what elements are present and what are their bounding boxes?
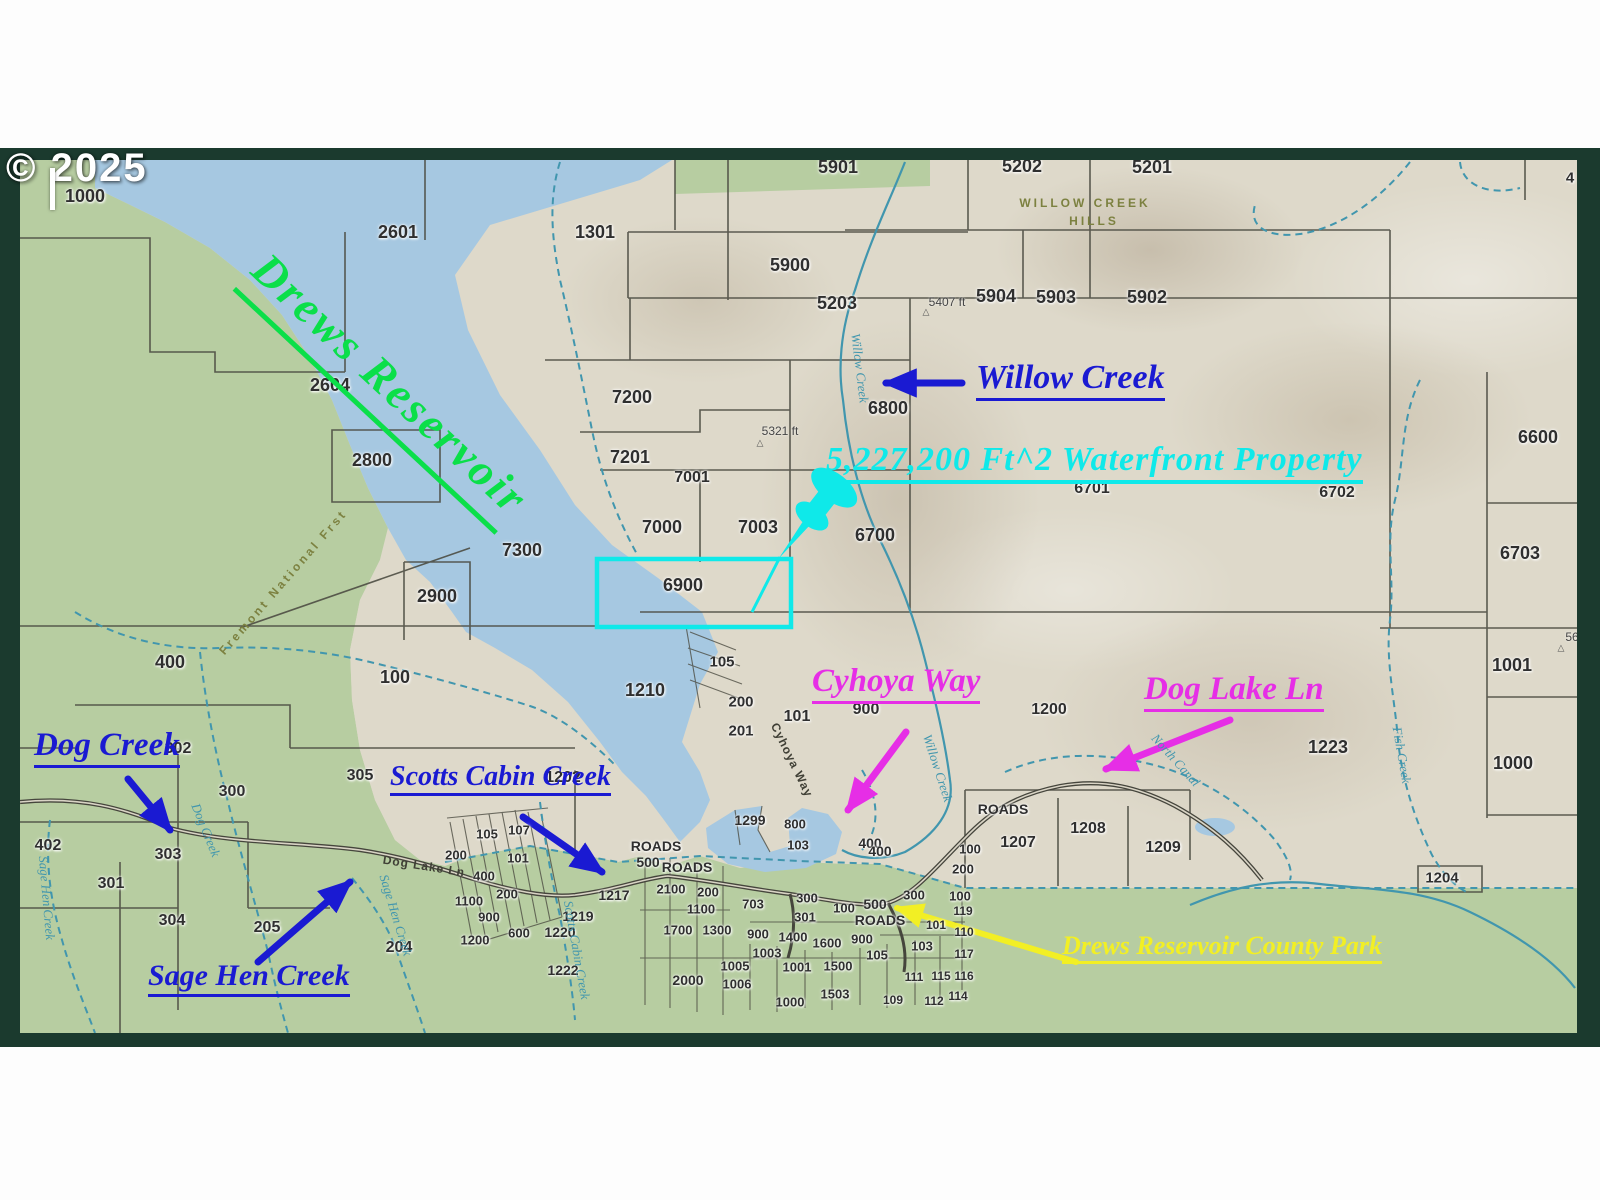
parcel-label: 1301 (575, 223, 615, 241)
county-park-callout: Drews Reservoir County Park (1062, 932, 1382, 964)
parcel-label: 5903 (1036, 288, 1076, 306)
parcel-label: 4 (1566, 171, 1574, 186)
parcel-label: 304 (159, 913, 186, 929)
parcel-label: 1001 (783, 961, 812, 974)
watermark: © 2025 (6, 146, 148, 191)
parcel-label: 1207 (1000, 835, 1036, 851)
parcel-label: 900 (747, 928, 769, 941)
parcel-label: 800 (784, 818, 806, 831)
creek-willow-solid (841, 162, 1575, 988)
parcel-label: 200 (728, 695, 753, 710)
parcel-label: ROADS (855, 913, 906, 927)
parcel-label: 101 (784, 709, 811, 725)
parcel-label: ROADS (631, 839, 682, 853)
parcel-label: 1100 (455, 895, 483, 908)
parcel-label: 5202 (1002, 160, 1042, 175)
parcel-label: 400 (868, 844, 891, 858)
parcel-label: 7201 (610, 448, 650, 466)
parcel-label: 1204 (1425, 871, 1458, 886)
parcel-label: 300 (796, 892, 818, 905)
parcel-label: 7003 (738, 518, 778, 536)
parcel-label: 107 (508, 824, 530, 837)
parcel-label: 6703 (1500, 544, 1540, 562)
elevation-triangle-icon: △ (923, 308, 930, 317)
parcel-label: 1200 (1031, 702, 1067, 718)
elevation-label: 56 (1565, 631, 1577, 643)
parcel-label: 5203 (817, 294, 857, 312)
parcel-label: 7300 (502, 541, 542, 559)
parcel-label: 6900 (663, 576, 703, 594)
parcel-label: 112 (924, 995, 943, 1007)
sage-hen-creek-callout: Sage Hen Creek (148, 960, 350, 997)
place-label: WILLOW CREEK (1019, 197, 1150, 209)
parcel-label: 2100 (657, 883, 686, 896)
parcel-label: 301 (794, 911, 816, 924)
scotts-cabin-creek-callout: Scotts Cabin Creek (390, 762, 611, 796)
parcel-label: 1300 (703, 924, 732, 937)
willow-creek-callout: Willow Creek (976, 360, 1165, 401)
parcel-label: 200 (445, 849, 467, 862)
parcel-label: 5902 (1127, 288, 1167, 306)
parcel-label: 1700 (664, 924, 693, 937)
elevation-label: 5407 ft (929, 296, 966, 308)
parcel-label: 6700 (855, 526, 895, 544)
cyhoya-way-callout: Cyhoya Way (812, 664, 980, 704)
parcel-label: 7000 (642, 518, 682, 536)
parcel-label: 5904 (976, 287, 1016, 305)
parcel-label: 1200 (461, 934, 490, 947)
parcel-label: 105 (866, 949, 888, 962)
parcel-label: 115 (931, 970, 950, 982)
parcel-label: 5901 (818, 160, 858, 176)
parcel-label: 1000 (776, 996, 805, 1009)
parcel-label: 100 (833, 902, 855, 915)
water-reservoir-bay (706, 806, 842, 872)
waterfront-property-label: 5,227,200 Ft^2 Waterfront Property (826, 442, 1363, 484)
parcel-label: 2900 (417, 587, 457, 605)
parcel-label: 600 (508, 927, 530, 940)
parcel-label: 6702 (1319, 485, 1355, 501)
parcel-label: 105 (476, 828, 498, 841)
parcel-label: 100 (949, 890, 971, 903)
parcel-label: 1600 (813, 937, 842, 950)
cyhoya-way-arrow (848, 732, 906, 810)
parcel-label: 303 (155, 847, 182, 863)
parcel-label: ROADS (978, 802, 1029, 816)
parcel-label: 300 (903, 889, 925, 902)
parcel-label: 114 (948, 990, 967, 1002)
parcel-label: 703 (742, 898, 764, 911)
map-frame: 1000260113015901520252014590052035904590… (0, 148, 1600, 1047)
parcel-label: 119 (953, 905, 972, 917)
parcel-label: 200 (496, 888, 518, 901)
parcel-label: 1217 (598, 888, 629, 902)
parcel-label: 900 (478, 911, 500, 924)
parcel-label: 1223 (1308, 738, 1348, 756)
parcel-label: 1299 (734, 813, 765, 827)
parcel-label: 400 (473, 870, 495, 883)
parcel-label: 5201 (1132, 160, 1172, 176)
parcel-label: 5900 (770, 256, 810, 274)
parcel-label: 1006 (723, 978, 752, 991)
listing-map-page: 1000260113015901520252014590052035904590… (0, 0, 1600, 1200)
elevation-label: 5321 ft (762, 425, 799, 437)
parcel-label: 205 (254, 920, 281, 936)
parcel-label: 500 (636, 855, 659, 869)
parcel-label: 111 (905, 971, 924, 983)
land-forest-top-strip (675, 160, 930, 194)
parcel-label: 200 (952, 863, 974, 876)
parcel-label: 117 (954, 948, 973, 960)
parcel-label: 305 (347, 768, 374, 784)
parcel-label: 300 (219, 784, 246, 800)
parcel-label: 1208 (1070, 821, 1106, 837)
parcel-label: 6600 (1518, 428, 1558, 446)
parcel-label: 101 (926, 919, 946, 931)
parcel-label: 1210 (625, 681, 665, 699)
parcel-label: 7200 (612, 388, 652, 406)
parcel-label: 1003 (753, 947, 782, 960)
parcel-label: 1503 (821, 988, 850, 1001)
parcel-label: 400 (155, 653, 185, 671)
place-label: HILLS (1069, 215, 1119, 227)
parcel-label: 103 (911, 940, 933, 953)
parcel-label: 110 (954, 926, 973, 938)
parcel-label: 100 (380, 668, 410, 686)
parcel-label: 1500 (824, 960, 853, 973)
parcel-label: 1209 (1145, 840, 1181, 856)
parcel-label: 201 (728, 724, 753, 739)
parcel-label: 2601 (378, 223, 418, 241)
parcel-label: ROADS (662, 860, 713, 874)
dog-creek-callout: Dog Creek (34, 728, 180, 768)
parcel-label: 6800 (868, 399, 908, 417)
map-image: 1000260113015901520252014590052035904590… (20, 160, 1577, 1033)
parcel-label: 105 (709, 655, 734, 670)
parcel-label: 101 (507, 852, 529, 865)
parcel-label: 2800 (352, 451, 392, 469)
dog-lake-ln-callout: Dog Lake Ln (1144, 672, 1324, 712)
parcel-label: 103 (787, 839, 809, 852)
parcel-label: 1005 (721, 960, 750, 973)
parcel-label: 109 (883, 994, 903, 1006)
parcel-label: 200 (697, 886, 719, 899)
parcel-label: 1400 (779, 931, 808, 944)
elevation-triangle-icon: △ (757, 439, 764, 448)
parcel-label: 1000 (1493, 754, 1533, 772)
parcel-label: 900 (851, 933, 873, 946)
parcel-label: 100 (959, 843, 981, 856)
elevation-triangle-icon: △ (1558, 644, 1565, 653)
parcel-label: 301 (98, 876, 125, 892)
parcel-label: 900 (853, 702, 880, 718)
parcel-label: 2000 (672, 973, 703, 987)
parcel-label: 1100 (687, 903, 715, 916)
parcel-label: 1001 (1492, 656, 1532, 674)
parcel-label: 7001 (674, 470, 710, 486)
parcel-label: 500 (863, 897, 886, 911)
parcel-label: 402 (35, 838, 62, 854)
parcel-label: 116 (954, 970, 973, 982)
